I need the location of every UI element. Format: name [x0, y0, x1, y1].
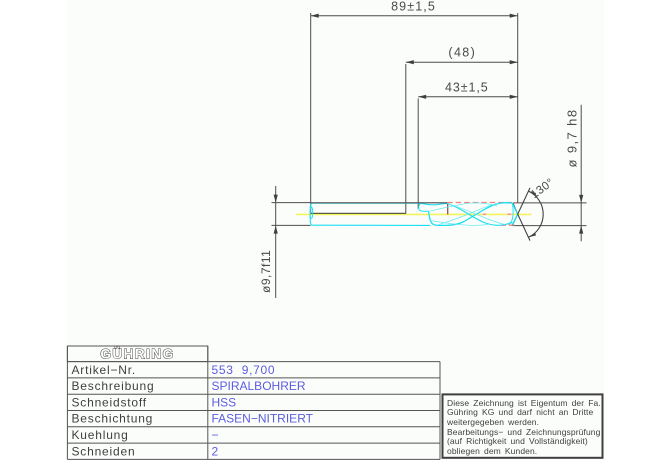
- svg-text:553 9,700: 553 9,700: [212, 363, 276, 377]
- svg-text:43±1,5: 43±1,5: [445, 80, 489, 94]
- svg-text:89±1,5: 89±1,5: [391, 0, 436, 13]
- svg-text:Beschichtung: Beschichtung: [72, 412, 154, 426]
- svg-text:ø9,7f11: ø9,7f11: [259, 250, 273, 293]
- svg-text:FASEN−NITRIERT: FASEN−NITRIERT: [212, 412, 314, 426]
- svg-text:2: 2: [212, 444, 219, 458]
- svg-text:Schneiden: Schneiden: [72, 444, 136, 458]
- svg-text:SPIRALBOHRER: SPIRALBOHRER: [212, 379, 306, 393]
- svg-text:Schneidstoff: Schneidstoff: [72, 395, 147, 409]
- svg-text:Beschreibung: Beschreibung: [72, 379, 155, 393]
- svg-text:(48): (48): [448, 45, 476, 59]
- svg-text:GÜHRING: GÜHRING: [100, 347, 174, 362]
- svg-text:Artikel−Nr.: Artikel−Nr.: [72, 363, 136, 377]
- svg-text:−: −: [212, 428, 219, 442]
- svg-text:HSS: HSS: [212, 395, 237, 409]
- svg-text:ø 9,7 h8: ø 9,7 h8: [565, 109, 580, 168]
- svg-text:Kuehlung: Kuehlung: [72, 428, 129, 442]
